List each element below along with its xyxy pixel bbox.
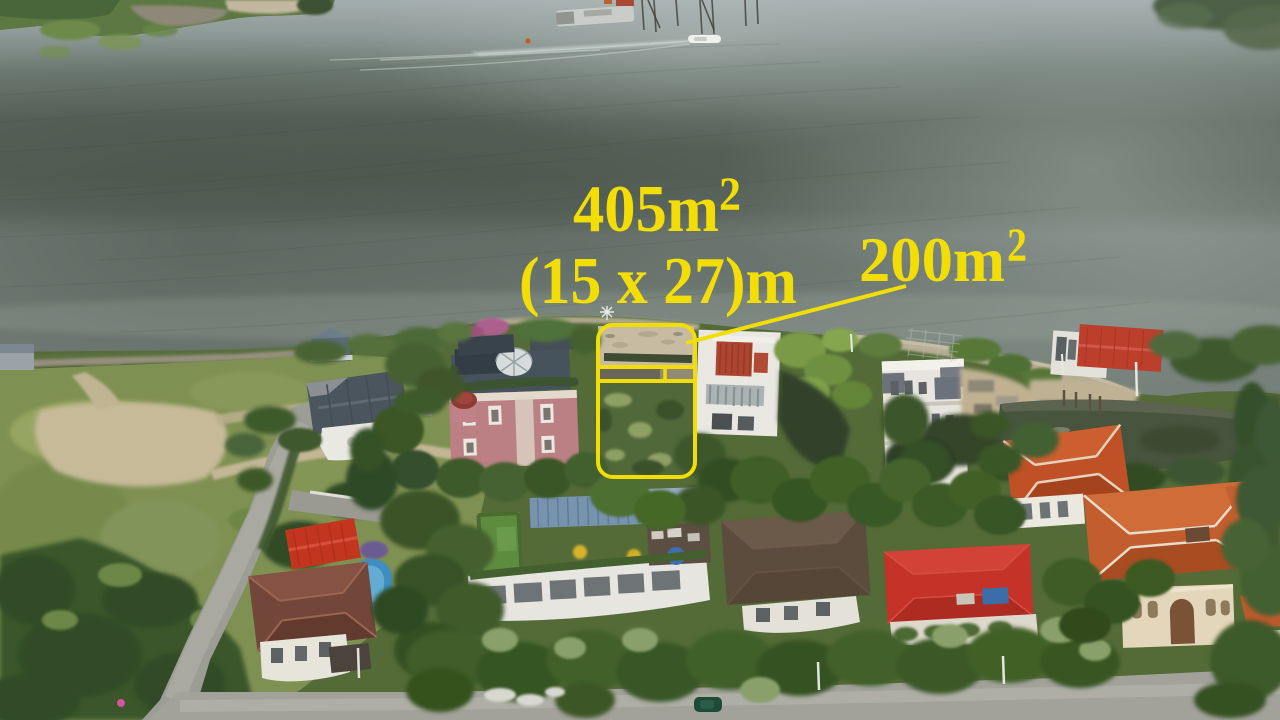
svg-text:2: 2 [1007,219,1027,272]
svg-text:(15 x 27)m: (15 x 27)m [519,244,797,318]
svg-text:405m: 405m [573,172,719,246]
svg-text:2: 2 [719,168,741,221]
svg-text:200m: 200m [859,224,1005,295]
